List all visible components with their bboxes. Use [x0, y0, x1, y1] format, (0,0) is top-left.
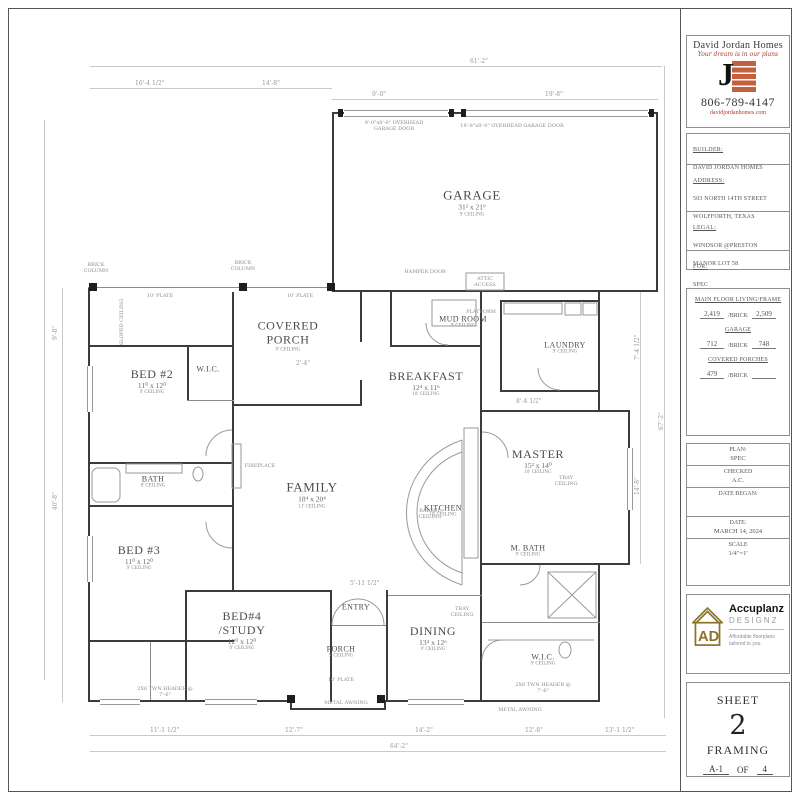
scale-value: 1/4"=1' [689, 550, 787, 557]
website-link[interactable]: davidjordanhomes.com [687, 110, 789, 116]
room-label-laundry: LAUNDRY9' CEILING [544, 341, 585, 356]
dim-label: 40'-8" [52, 492, 59, 510]
living-area-value: 2,419 [700, 310, 724, 319]
note-garage-door-large: 18'-8"x8'-0" OVERHEAD GARAGE DOOR [460, 123, 563, 129]
dim-label: 11'-1 1/2" [150, 727, 179, 734]
dim-label: 5'-11 1/2" [350, 580, 379, 587]
logo-box: David Jordan Homes Your dream is in our … [686, 35, 790, 128]
brick-graphic [732, 61, 756, 92]
designer-tagline: Affordable floorplans tailored to you. [729, 634, 784, 648]
designer-name: Accuplanz [729, 603, 784, 615]
sheet-total: 4 [757, 764, 774, 775]
room-label-master: MASTER15² x 14⁰10' CEILING [512, 448, 564, 476]
garage-brick-value: 748 [752, 340, 776, 349]
room-ceiling: 9' CEILING [118, 566, 161, 572]
builder-label: BUILDER: [693, 147, 723, 153]
note-tray-ceiling: TRAY CEILING [450, 606, 474, 618]
svg-text:AD: AD [698, 629, 719, 645]
note-attic-access: ATTIC ACCESS [470, 276, 500, 288]
dim-label: 8'-4 1/2" [516, 398, 542, 405]
room-label-entry: ENTRY [342, 602, 370, 611]
room-label-bed3: BED #311⁰ x 12⁰9' CEILING [118, 544, 161, 572]
room-label-bath: BATH8' CEILING [141, 475, 166, 490]
porches-area-value: 479 [700, 370, 724, 379]
room-ceiling: 9' CEILING [410, 647, 456, 653]
room-ceiling: 9' CEILING [531, 662, 556, 668]
sheet-number: 2 [687, 710, 789, 741]
date-began-row: DATE BEGAN: [687, 488, 789, 517]
living-area-row: 2,419 /BRICK 2,509 [687, 310, 789, 319]
drawing-sheet: GARAGE31² x 21⁹9' CEILING COVERED PORCH9… [0, 0, 800, 800]
garage-area-label: GARAGE [687, 327, 789, 333]
sheet-code: A-1 [703, 764, 729, 775]
room-dims: 11⁰ x 12⁰ [118, 558, 161, 567]
room-label-bed2: BED #211⁰ x 12⁰9' CEILING [131, 368, 174, 396]
room-dims: 12⁴ x 11⁶ [389, 384, 464, 393]
room-dims: 31² x 21⁹ [443, 203, 501, 212]
note-plate: 10' PLATE [287, 293, 313, 299]
room-name: M. BATH [511, 544, 546, 553]
dim-label: 7'-4 1/2" [634, 334, 641, 360]
note-fireplace: FIREPLACE [242, 463, 278, 469]
for-label: FOR: [693, 264, 708, 270]
date-row: DATE: MARCH 14, 2024 [687, 517, 789, 539]
dim-label: 14'-8" [634, 477, 641, 495]
company-tagline: Your dream is in our plans [687, 51, 789, 58]
room-name: GARAGE [443, 188, 501, 203]
room-name: BED#4 /STUDY [217, 610, 267, 638]
note-barrel-ceiling: BARREL CEILING [416, 508, 444, 520]
room-label-master-bath: M. BATH9' CEILING [511, 544, 546, 559]
room-label-covered-porch: COVERED PORCH9' CEILING [253, 319, 323, 352]
room-dims: 13⁴ x 12⁶ [410, 639, 456, 648]
dim-label: 9'-8" [52, 326, 59, 340]
note-hamper-door: HAMPER DOOR [404, 269, 445, 275]
plan-label: PLAN: [689, 447, 787, 453]
porches-brick-value [752, 378, 776, 379]
room-name: BED #3 [118, 544, 161, 558]
sheet-box: SHEET 2 FRAMING A-1 OF 4 [686, 682, 790, 777]
designer-box: AD Accuplanz DESIGNZ Affordable floorpla… [686, 594, 790, 674]
porches-area-row: 479 /BRICK [687, 370, 789, 379]
designer-tagline-2: tailored to you. [729, 641, 762, 647]
logo-monogram: J [718, 56, 734, 93]
room-label-dining: DINING13⁴ x 12⁶9' CEILING [410, 625, 456, 653]
living-brick-value: 2,509 [752, 310, 776, 319]
designer-tagline-1: Affordable floorplans [729, 634, 775, 640]
brick-label: /BRICK [728, 343, 748, 349]
living-area-label: MAIN FLOOR LIVING/FRAME [687, 297, 789, 303]
sheet-code-row: A-1 OF 4 [687, 764, 789, 775]
company-logo: J [718, 60, 758, 94]
room-ceiling: 9' CEILING [511, 553, 546, 559]
plan-meta-box: PLAN: SPEC CHECKED A.C. DATE BEGAN: DATE… [686, 443, 790, 586]
note-metal-awning: METAL AWNING [498, 707, 542, 713]
checked-row: CHECKED A.C. [687, 466, 789, 488]
room-name: MUD ROOM [439, 315, 487, 324]
note-brick-column: BRICK COLUMN [230, 260, 256, 272]
areas-box: MAIN FLOOR LIVING/FRAME 2,419 /BRICK 2,5… [686, 288, 790, 436]
legal-label: LEGAL: [693, 225, 716, 231]
note-header: 2X6 TWN HEADER @ 7'-6" [515, 682, 571, 694]
address-label: ADDRESS: [693, 178, 724, 184]
room-dims: 11⁰ x 12⁰ [131, 382, 174, 391]
room-name: FAMILY [286, 480, 337, 495]
checked-value: A.C. [689, 477, 787, 484]
room-name: PORCH [327, 645, 356, 654]
room-label-breakfast: BREAKFAST12⁴ x 11⁶10' CEILING [389, 370, 464, 398]
brick-label: /BRICK [728, 313, 748, 319]
phone-number: 806-789-4147 [687, 95, 789, 110]
room-ceiling: 9' CEILING [443, 212, 501, 218]
dim-label: 16'-4 1/2" [135, 80, 164, 87]
legal-line1: WINDSOR @PRESTON [693, 243, 758, 249]
dim-label: 64'-2" [390, 743, 408, 750]
room-ceiling: 9' CEILING [131, 390, 174, 396]
dim-label: 67'-2" [658, 412, 665, 430]
room-label-porch: PORCH9' CEILING [327, 645, 356, 660]
accuplanz-logo-icon: AD [692, 603, 723, 651]
room-label-garage: GARAGE31² x 21⁹9' CEILING [443, 188, 501, 217]
room-ceiling: 9' CEILING [217, 646, 267, 652]
address-line1: 503 NORTH 14TH STREET [693, 196, 767, 202]
dim-label: 12'-8" [525, 727, 543, 734]
date-label: DATE: [689, 520, 787, 526]
room-ceiling: 9' CEILING [439, 324, 487, 330]
room-name: W.I.C. [196, 364, 219, 373]
designer-subname: DESIGNZ [729, 616, 784, 630]
date-value: MARCH 14, 2024 [689, 528, 787, 535]
checked-label: CHECKED [689, 469, 787, 475]
sheet-label: SHEET [687, 693, 789, 708]
room-name: LAUNDRY [544, 341, 585, 350]
room-name: ENTRY [342, 602, 370, 611]
scale-row: SCALE 1/4"=1' [687, 539, 789, 560]
plan-value: SPEC [689, 455, 787, 462]
note-metal-awning: METAL AWNING [324, 700, 368, 706]
brick-label: /BRICK [728, 373, 748, 379]
builder-section: BUILDER: DAVID JORDAN HOMES [687, 134, 789, 165]
room-dims: 18⁴ x 20⁴ [286, 495, 337, 504]
note-brick-column: BRICK COLUMN [83, 262, 109, 274]
garage-area-row: 712 /BRICK 748 [687, 340, 789, 349]
room-ceiling: 8' CEILING [141, 484, 166, 490]
note-garage-door-small: 9'-0"x8'-0" OVERHEAD GARAGE DOOR [359, 120, 429, 132]
room-name: BED #2 [131, 368, 174, 382]
room-dims: 12⁰ x 12⁰ [217, 638, 267, 647]
dim-label: 9'-0" [372, 91, 386, 98]
room-name: MASTER [512, 448, 564, 462]
room-label-bed4-study: BED#4 /STUDY12⁰ x 12⁰9' CEILING [217, 610, 267, 652]
sheet-type: FRAMING [687, 743, 789, 758]
dim-label: 13'-1 1/2" [605, 727, 634, 734]
sheet-of-label: OF [737, 765, 749, 775]
room-name: W.I.C. [531, 653, 556, 662]
note-header: 2X6 TWN HEADER @ 7'-6" [137, 686, 193, 698]
room-dims: 15² x 14⁰ [512, 462, 564, 471]
scale-label: SCALE [689, 542, 787, 548]
note-plate: 10' PLATE [147, 293, 173, 299]
dim-label: 14'-8" [262, 80, 280, 87]
project-info-box: BUILDER: DAVID JORDAN HOMES ADDRESS: 503… [686, 133, 790, 270]
room-ceiling: 9' CEILING [544, 350, 585, 356]
company-name: David Jordan Homes [687, 40, 789, 51]
room-name: BATH [141, 475, 166, 484]
porches-area-label: COVERED PORCHES [687, 357, 789, 363]
garage-area-value: 712 [700, 340, 724, 349]
room-ceiling: 10' CEILING [389, 392, 464, 398]
room-label-family: FAMILY18⁴ x 20⁴11' CEILING [286, 480, 337, 509]
dim-label: 12'-7" [285, 727, 303, 734]
room-label-wic-2: W.I.C.9' CEILING [531, 653, 556, 668]
room-ceiling: 9' CEILING [253, 347, 323, 353]
room-name: BREAKFAST [389, 370, 464, 384]
dim-label: 61'-2" [470, 58, 488, 65]
note-plate: 10' PLATE [328, 677, 354, 683]
dim-label: 2'-4" [296, 360, 310, 367]
note-sloped-ceiling: SLOPED CEILING [119, 299, 125, 346]
room-label-wic-1: W.I.C. [196, 364, 219, 373]
room-ceiling: 9' CEILING [327, 654, 356, 660]
note-tray-ceiling: TRAY CEILING [554, 475, 578, 487]
room-label-mud-room: MUD ROOM9' CEILING [439, 315, 487, 330]
room-ceiling: 11' CEILING [286, 504, 337, 510]
dim-label: 14'-2" [415, 727, 433, 734]
note-platform: PLATFORM [466, 309, 496, 315]
plan-row: PLAN: SPEC [687, 444, 789, 466]
dim-label: 19'-8" [545, 91, 563, 98]
room-name: COVERED PORCH [253, 319, 323, 347]
date-began-label: DATE BEGAN: [689, 491, 787, 497]
room-name: DINING [410, 625, 456, 639]
